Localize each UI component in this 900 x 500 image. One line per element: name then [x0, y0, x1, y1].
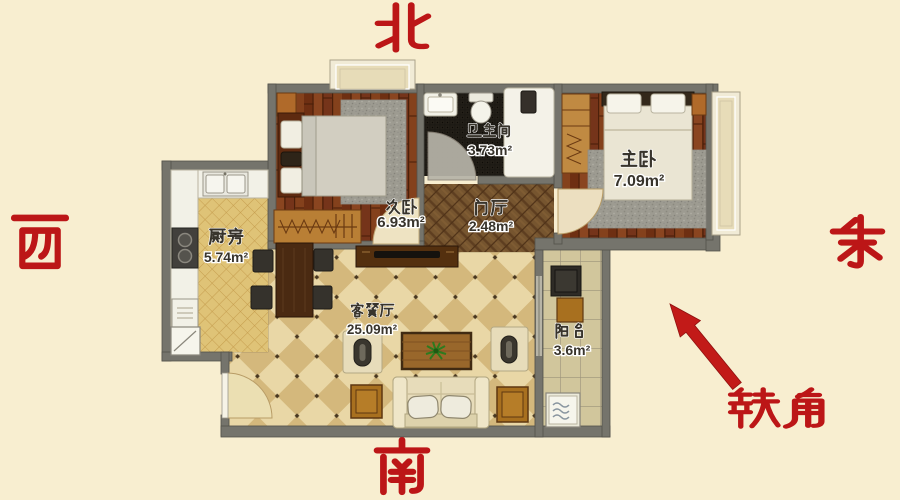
svg-text:6.93m²: 6.93m² — [377, 214, 425, 231]
svg-text:7.09m²: 7.09m² — [614, 173, 665, 190]
svg-text:5.74m²: 5.74m² — [204, 249, 249, 265]
svg-text:25.09m²: 25.09m² — [347, 322, 398, 337]
svg-text:3.73m²: 3.73m² — [468, 142, 513, 158]
svg-text:3.6m²: 3.6m² — [554, 342, 591, 358]
svg-text:2.48m²: 2.48m² — [469, 218, 514, 234]
